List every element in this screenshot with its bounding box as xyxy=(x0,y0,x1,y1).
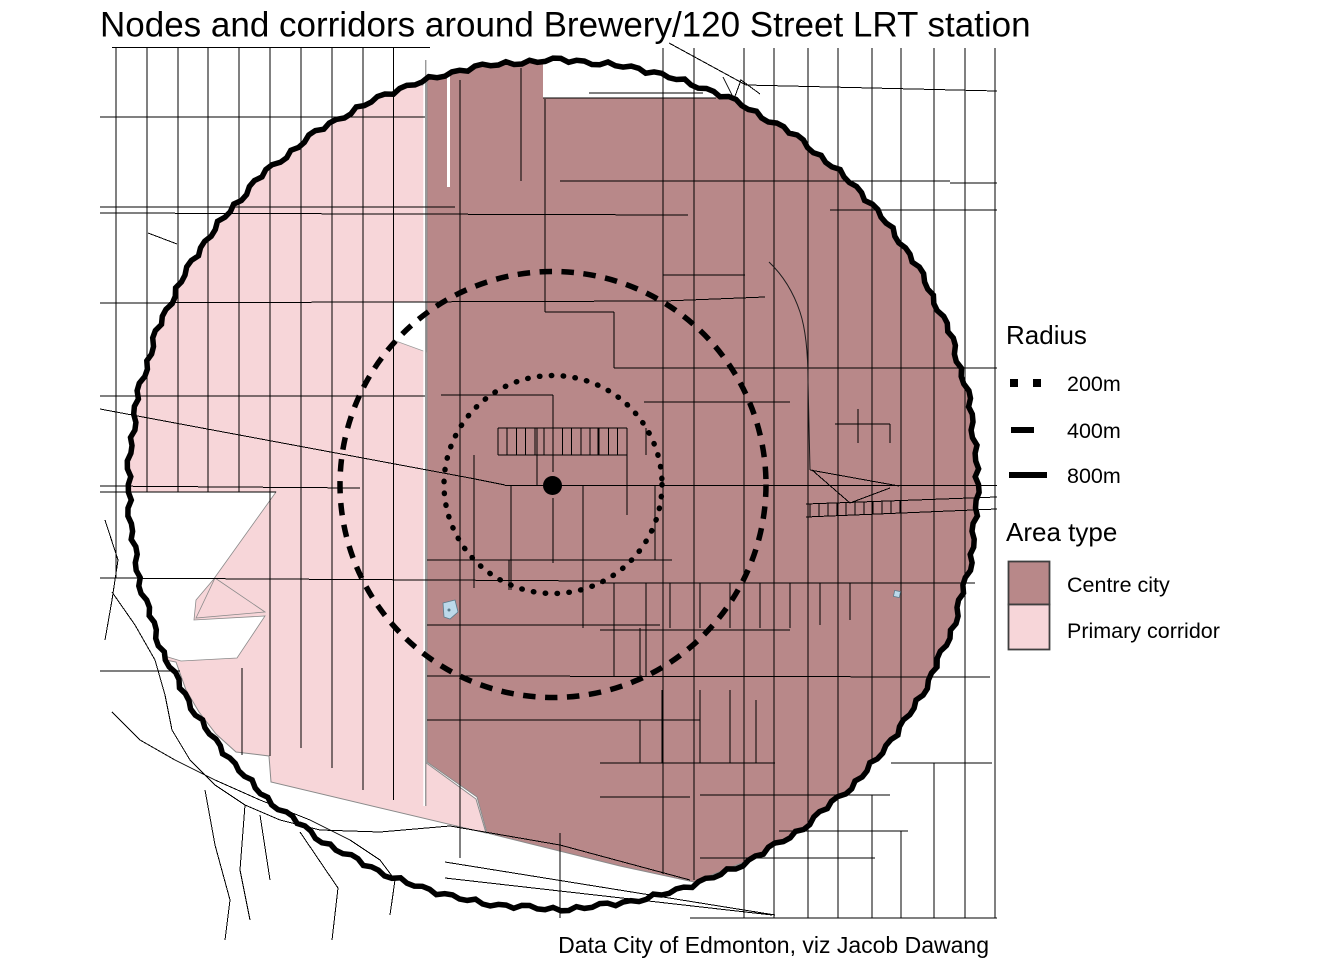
svg-text:800m: 800m xyxy=(1067,464,1121,488)
svg-text:Nodes and corridors around Bre: Nodes and corridors around Brewery/120 S… xyxy=(100,6,1031,45)
svg-text:Data City of Edmonton, viz Jac: Data City of Edmonton, viz Jacob Dawang xyxy=(558,932,989,958)
svg-text:Primary corridor: Primary corridor xyxy=(1067,619,1220,643)
svg-text:200m: 200m xyxy=(1067,372,1121,396)
svg-text:Radius: Radius xyxy=(1006,320,1087,350)
svg-text:Centre city: Centre city xyxy=(1067,573,1170,597)
svg-text:Area type: Area type xyxy=(1006,517,1117,547)
svg-text:400m: 400m xyxy=(1067,419,1121,443)
